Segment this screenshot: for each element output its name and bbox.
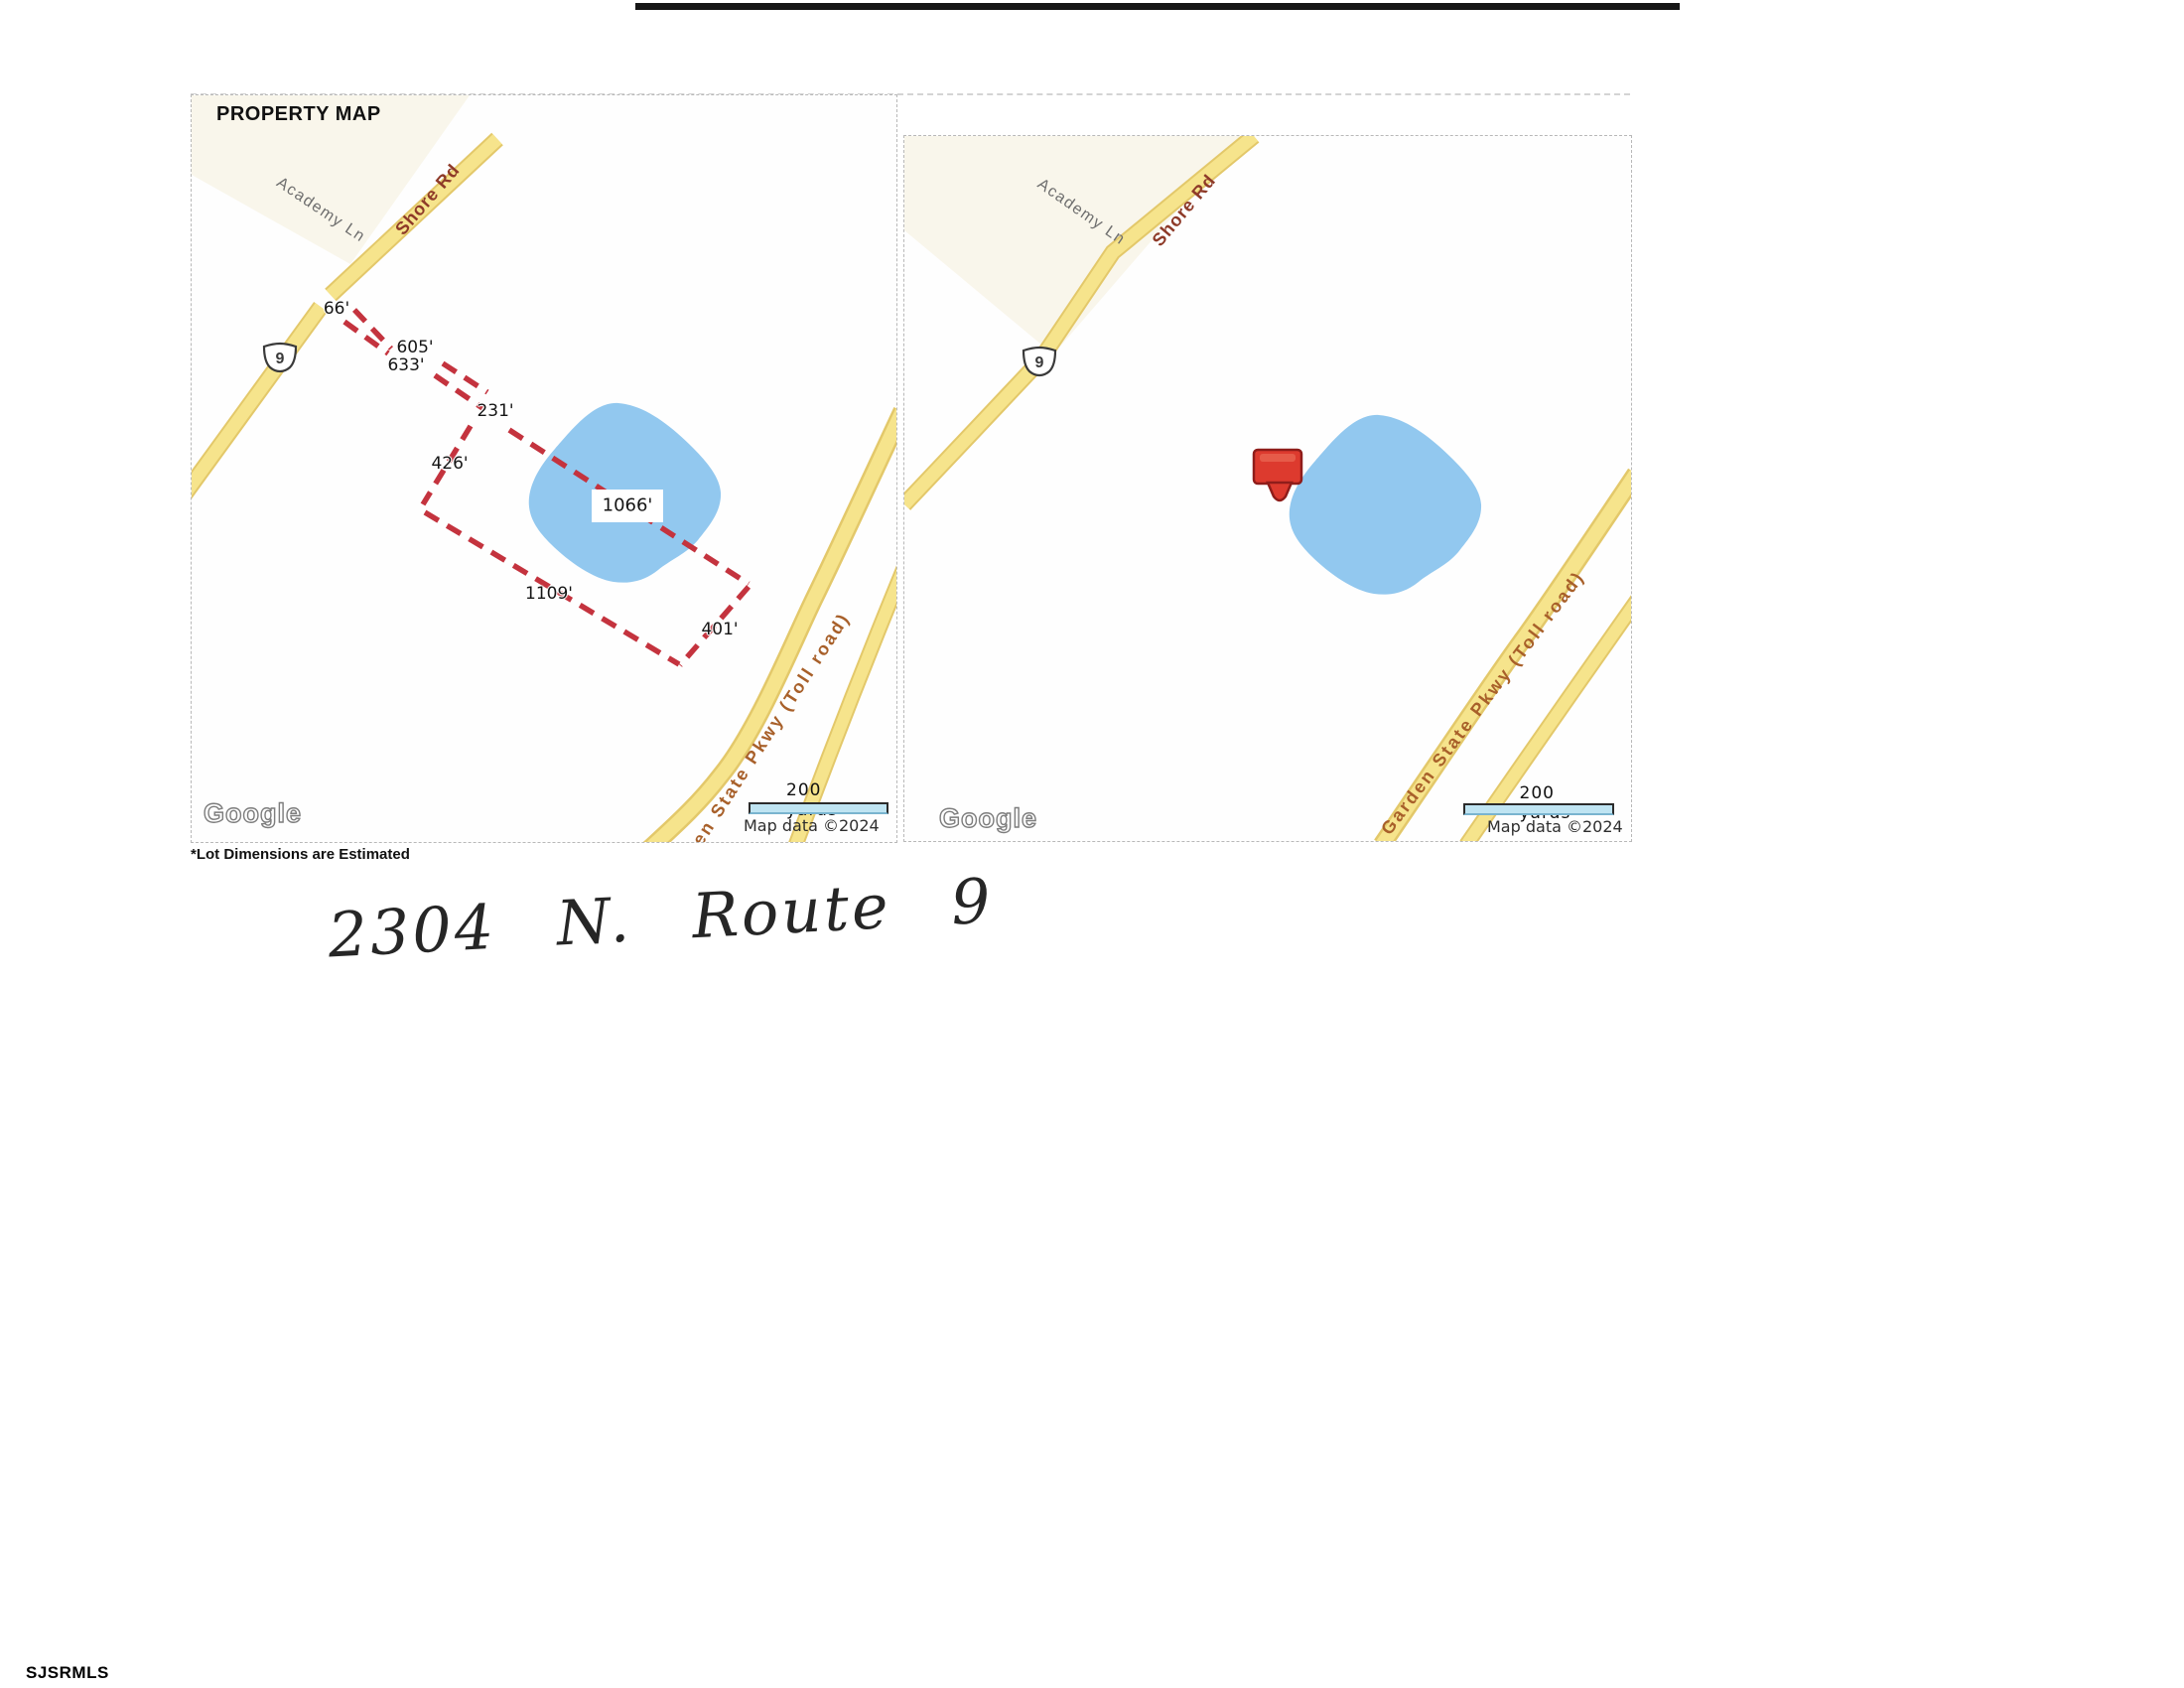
- map-attribution: Map data ©2024: [744, 816, 880, 835]
- pond-water: [1290, 415, 1481, 595]
- dimension-label-426: 426': [431, 454, 468, 474]
- route-9-shield-icon: 9: [264, 344, 296, 371]
- dimension-label-1109: 1109': [525, 584, 573, 604]
- route-9-shield-icon: 9: [1024, 348, 1055, 375]
- map-attribution: Map data ©2024: [1487, 817, 1623, 836]
- dimension-label-605: 605': [396, 338, 433, 357]
- property-map-panel: 9 PROPERTY MAP Academy Ln Shore Rd Garde…: [191, 94, 897, 843]
- handwritten-address: 2304 N. Route 9: [327, 864, 996, 971]
- property-map-canvas: 9: [192, 95, 896, 842]
- page-title: PROPERTY MAP: [216, 103, 381, 126]
- route9-road: [192, 307, 321, 495]
- scale-label: 200 yards: [786, 780, 860, 820]
- svg-text:9: 9: [276, 351, 285, 367]
- svg-text:9: 9: [1035, 354, 1044, 371]
- mls-watermark: SJSRMLS: [26, 1663, 109, 1683]
- dimension-label-633: 633': [387, 355, 424, 375]
- lot-dimensions-footnote: *Lot Dimensions are Estimated: [191, 846, 410, 863]
- google-logo: Google: [939, 803, 1037, 834]
- scanned-property-map-sheet: 9 PROPERTY MAP Academy Ln Shore Rd Garde…: [0, 0, 2184, 1688]
- dimension-label-1066: 1066': [595, 492, 661, 519]
- dimension-label-66: 66': [324, 299, 349, 319]
- scan-artifact-strip: [635, 3, 1680, 10]
- location-map-panel: 9 Academy Ln Shore Rd Garden State Pkwy …: [903, 135, 1632, 842]
- location-map-canvas: 9: [904, 136, 1631, 841]
- dimension-label-401: 401': [701, 620, 738, 639]
- dimension-label-231: 231': [477, 401, 513, 421]
- google-logo: Google: [204, 798, 302, 829]
- scale-bar: [1463, 803, 1614, 815]
- scale-bar: [749, 802, 888, 814]
